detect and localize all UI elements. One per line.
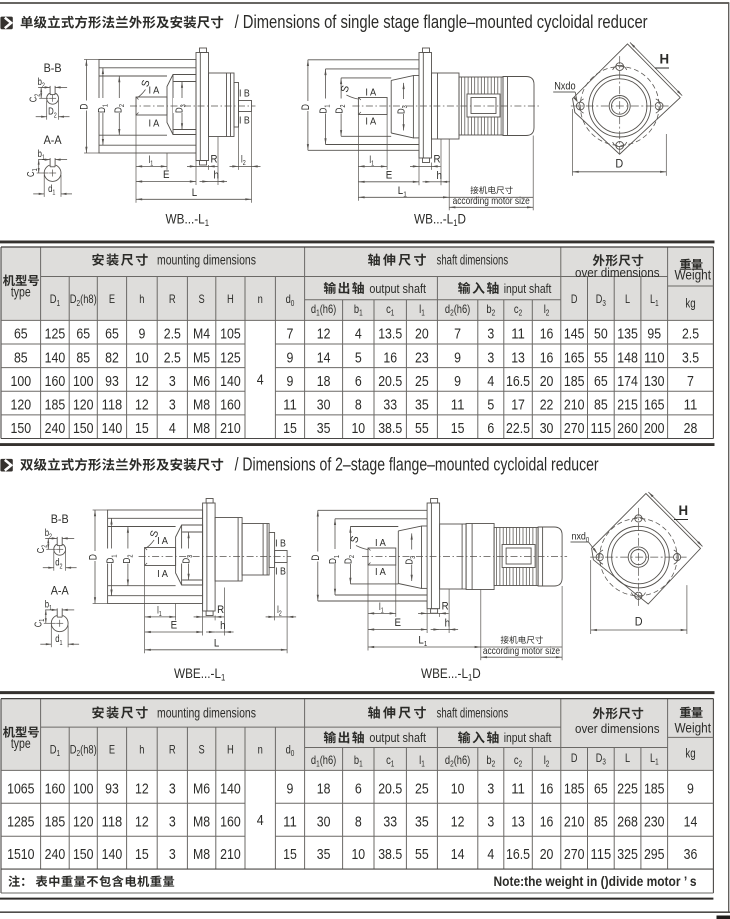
svg-text:I B: I B	[275, 539, 286, 550]
svg-text:85: 85	[76, 350, 90, 366]
svg-text:200: 200	[644, 421, 665, 437]
svg-text:/ Dimensions of 2–stage flange: / Dimensions of 2–stage flange–mounted c…	[235, 455, 599, 475]
svg-text:20.5: 20.5	[378, 374, 402, 390]
svg-text:L: L	[625, 751, 630, 765]
svg-text:I A: I A	[157, 536, 168, 547]
svg-text:output shaft: output shaft	[369, 281, 426, 296]
svg-text:D: D	[615, 156, 623, 170]
svg-text:100: 100	[73, 781, 94, 797]
svg-text:D: D	[300, 104, 312, 110]
svg-text:E: E	[386, 169, 393, 181]
svg-text:16: 16	[383, 350, 397, 366]
svg-text:2.5: 2.5	[164, 350, 181, 366]
svg-text:2: 2	[492, 309, 496, 318]
svg-text:100: 100	[73, 374, 94, 390]
svg-text:4: 4	[487, 847, 494, 863]
svg-text:mounting dimensions: mounting dimensions	[157, 705, 256, 720]
svg-text:9: 9	[287, 350, 294, 366]
svg-text:R: R	[169, 292, 176, 306]
svg-text:0: 0	[291, 299, 295, 308]
svg-text:12: 12	[135, 374, 149, 390]
svg-text:2: 2	[279, 611, 282, 618]
svg-text:12: 12	[317, 327, 331, 343]
svg-text:7: 7	[454, 327, 461, 343]
svg-text:2: 2	[117, 104, 126, 107]
svg-text:65: 65	[14, 327, 28, 343]
svg-text:1: 1	[101, 104, 110, 107]
svg-text:h: h	[139, 743, 144, 757]
svg-text:260: 260	[617, 421, 638, 437]
svg-text:1: 1	[57, 749, 61, 758]
svg-text:3: 3	[169, 814, 176, 830]
svg-text:D: D	[571, 292, 578, 306]
svg-text:33: 33	[383, 814, 397, 830]
svg-text:35: 35	[317, 421, 331, 437]
svg-text:7: 7	[687, 374, 694, 390]
svg-text:1: 1	[391, 759, 395, 768]
svg-text:2: 2	[243, 160, 246, 167]
svg-text:D: D	[571, 751, 578, 765]
svg-text:D: D	[458, 211, 467, 227]
svg-text:17: 17	[511, 398, 525, 414]
svg-text:15: 15	[283, 421, 297, 437]
svg-text:1: 1	[391, 309, 395, 318]
svg-text:230: 230	[644, 814, 665, 830]
svg-text:(h6): (h6)	[454, 302, 471, 316]
svg-text:1: 1	[332, 555, 341, 558]
svg-text:210: 210	[564, 814, 585, 830]
svg-text:8: 8	[355, 814, 362, 830]
svg-text:16.5: 16.5	[506, 374, 530, 390]
svg-text:15: 15	[135, 847, 149, 863]
svg-text:E: E	[171, 620, 178, 632]
svg-text:1: 1	[60, 640, 63, 647]
svg-text:85: 85	[14, 350, 28, 366]
svg-text:1: 1	[57, 299, 61, 308]
svg-text:2: 2	[42, 83, 45, 90]
svg-text:118: 118	[102, 398, 123, 414]
svg-text:115: 115	[591, 847, 612, 863]
svg-text:3.5: 3.5	[682, 350, 699, 366]
svg-text:55: 55	[594, 350, 608, 366]
svg-text:1510: 1510	[7, 847, 34, 863]
svg-text:1285: 1285	[7, 814, 34, 830]
svg-text:n: n	[258, 292, 263, 306]
svg-text:2: 2	[126, 555, 135, 558]
svg-text:WBE...-L: WBE...-L	[174, 665, 221, 681]
svg-text:12: 12	[135, 398, 149, 414]
svg-text:85: 85	[594, 814, 608, 830]
svg-text:2: 2	[546, 759, 550, 768]
svg-text:n: n	[258, 743, 263, 757]
svg-text:65: 65	[105, 327, 119, 343]
svg-text:9: 9	[454, 350, 461, 366]
svg-text:H: H	[660, 51, 670, 67]
svg-text:14: 14	[451, 847, 465, 863]
svg-text:1: 1	[424, 639, 428, 648]
svg-text:38.5: 38.5	[378, 421, 402, 437]
svg-text:1065: 1065	[7, 781, 34, 797]
svg-text:0: 0	[586, 537, 589, 544]
svg-text:(h6): (h6)	[320, 753, 337, 767]
svg-text:160: 160	[220, 814, 241, 830]
svg-text:1: 1	[150, 161, 153, 168]
svg-text:according motor size: according motor size	[453, 196, 530, 207]
svg-text:10: 10	[351, 847, 365, 863]
svg-text:185: 185	[564, 374, 585, 390]
svg-text:16: 16	[540, 781, 554, 797]
svg-text:I A: I A	[375, 567, 386, 578]
svg-text:240: 240	[45, 421, 66, 437]
svg-text:14: 14	[317, 350, 331, 366]
svg-text:kg: kg	[685, 297, 695, 311]
svg-text:h: h	[445, 618, 450, 630]
svg-text:145: 145	[564, 327, 585, 343]
svg-text:L: L	[214, 637, 219, 649]
svg-text:215: 215	[617, 398, 638, 414]
svg-text:M6: M6	[193, 374, 210, 390]
svg-text:16: 16	[540, 327, 554, 343]
svg-text:2: 2	[41, 545, 48, 548]
svg-text:1: 1	[421, 759, 425, 768]
svg-text:h: h	[139, 292, 144, 306]
svg-text:9: 9	[454, 374, 461, 390]
svg-text:38.5: 38.5	[378, 847, 402, 863]
svg-text:30: 30	[540, 421, 554, 437]
svg-text:150: 150	[73, 421, 94, 437]
svg-text:3: 3	[487, 327, 494, 343]
svg-text:R: R	[434, 153, 441, 165]
svg-text:A-A: A-A	[51, 583, 70, 597]
svg-text:270: 270	[564, 847, 585, 863]
svg-text:1: 1	[322, 105, 331, 108]
svg-text:2: 2	[519, 759, 523, 768]
svg-text:35: 35	[415, 814, 429, 830]
svg-text:135: 135	[617, 327, 638, 343]
svg-text:M4: M4	[193, 327, 210, 343]
svg-text:55: 55	[415, 847, 429, 863]
svg-text:H: H	[227, 292, 234, 306]
svg-text:20: 20	[415, 327, 429, 343]
svg-text:mounting dimensions: mounting dimensions	[157, 253, 256, 268]
svg-text:I B: I B	[239, 116, 250, 127]
svg-text:I A: I A	[149, 86, 160, 97]
svg-text:over dimensions: over dimensions	[575, 265, 660, 280]
svg-text:125: 125	[45, 327, 66, 343]
svg-text:5: 5	[487, 398, 494, 414]
svg-text:55: 55	[415, 421, 429, 437]
svg-text:2.5: 2.5	[682, 327, 699, 343]
svg-text:1: 1	[221, 673, 225, 683]
svg-text:65: 65	[594, 374, 608, 390]
svg-text:11: 11	[451, 398, 465, 414]
svg-text:E: E	[109, 292, 115, 306]
svg-text:according motor size: according motor size	[483, 646, 560, 657]
svg-text:20: 20	[540, 374, 554, 390]
svg-text:R: R	[217, 604, 224, 616]
svg-text:11: 11	[283, 814, 297, 830]
svg-text:22.5: 22.5	[506, 421, 530, 437]
svg-text:25: 25	[415, 374, 429, 390]
svg-text:output shaft: output shaft	[369, 730, 426, 745]
svg-text:16: 16	[540, 814, 554, 830]
svg-text:I B: I B	[239, 89, 250, 100]
svg-text:I A: I A	[365, 117, 376, 128]
svg-text:210: 210	[564, 398, 585, 414]
svg-text:2: 2	[519, 309, 523, 318]
svg-text:25: 25	[415, 781, 429, 797]
svg-text:B-B: B-B	[51, 512, 69, 526]
svg-text:Weight: Weight	[675, 721, 712, 736]
svg-text:120: 120	[73, 814, 94, 830]
svg-text:h: h	[214, 170, 219, 182]
svg-text:23: 23	[415, 350, 429, 366]
svg-text:1: 1	[109, 555, 118, 558]
svg-text:10: 10	[351, 421, 365, 437]
svg-text:6: 6	[355, 374, 362, 390]
svg-text:6: 6	[355, 781, 362, 797]
svg-text:160: 160	[45, 374, 66, 390]
svg-text:174: 174	[617, 374, 638, 390]
svg-text:140: 140	[220, 374, 241, 390]
svg-text:325: 325	[617, 847, 638, 863]
svg-text:h: h	[220, 620, 225, 632]
svg-text:S: S	[199, 292, 205, 306]
svg-text:Nxdo: Nxdo	[554, 81, 575, 93]
svg-text:M8: M8	[193, 421, 210, 437]
svg-text:9: 9	[287, 781, 294, 797]
svg-text:150: 150	[10, 421, 31, 437]
svg-text:85: 85	[594, 398, 608, 414]
svg-text:11: 11	[283, 398, 297, 414]
svg-text:11: 11	[511, 327, 525, 343]
svg-text:14: 14	[684, 814, 698, 830]
svg-text:185: 185	[564, 781, 585, 797]
svg-text:165: 165	[644, 398, 665, 414]
svg-text:3: 3	[487, 814, 494, 830]
svg-text:Weight: Weight	[675, 268, 712, 283]
svg-text:1: 1	[39, 619, 46, 622]
svg-text:30: 30	[317, 398, 331, 414]
svg-text:S: S	[199, 743, 205, 757]
svg-text:118: 118	[102, 814, 123, 830]
svg-text:R: R	[211, 153, 218, 165]
svg-text:140: 140	[102, 421, 123, 437]
svg-text:20: 20	[540, 847, 554, 863]
svg-text:11: 11	[511, 781, 525, 797]
svg-text:18: 18	[317, 781, 331, 797]
svg-text:65: 65	[76, 327, 90, 343]
svg-text:120: 120	[10, 398, 31, 414]
svg-text:185: 185	[644, 781, 665, 797]
svg-text:2: 2	[49, 534, 52, 541]
svg-text:E: E	[109, 743, 115, 757]
svg-text:1: 1	[403, 189, 407, 198]
svg-text:185: 185	[45, 814, 66, 830]
svg-text:10: 10	[451, 781, 465, 797]
svg-text:13: 13	[511, 350, 525, 366]
svg-text:3: 3	[602, 758, 606, 767]
svg-text:13.5: 13.5	[378, 327, 402, 343]
svg-text:120: 120	[73, 398, 94, 414]
svg-text:1: 1	[49, 605, 52, 612]
svg-text:I A: I A	[375, 538, 386, 549]
svg-text:M5: M5	[193, 350, 210, 366]
svg-text:240: 240	[45, 847, 66, 863]
svg-text:M8: M8	[193, 814, 210, 830]
svg-text:M8: M8	[193, 398, 210, 414]
svg-text:9: 9	[687, 781, 694, 797]
svg-text:5: 5	[355, 350, 362, 366]
svg-text:50: 50	[594, 327, 608, 343]
svg-text:2.5: 2.5	[164, 327, 181, 343]
svg-text:1: 1	[655, 299, 659, 308]
svg-text:H: H	[227, 743, 234, 757]
svg-text:input shaft: input shaft	[504, 281, 552, 296]
svg-text:2: 2	[546, 309, 550, 318]
svg-text:35: 35	[415, 398, 429, 414]
svg-text:165: 165	[564, 350, 585, 366]
svg-text:(h8): (h8)	[80, 743, 97, 757]
svg-text:18: 18	[317, 374, 331, 390]
svg-text:22: 22	[540, 398, 554, 414]
svg-text:WBE...-L: WBE...-L	[421, 665, 468, 681]
svg-text:3: 3	[169, 847, 176, 863]
svg-text:nxd: nxd	[572, 531, 587, 543]
svg-text:15: 15	[451, 421, 465, 437]
svg-text:10: 10	[135, 350, 149, 366]
svg-text:3: 3	[602, 299, 606, 308]
svg-text:105: 105	[220, 327, 241, 343]
svg-text:148: 148	[617, 350, 638, 366]
svg-text:93: 93	[105, 374, 119, 390]
svg-text:160: 160	[45, 781, 66, 797]
svg-text:R: R	[442, 600, 449, 612]
svg-text:11: 11	[684, 398, 698, 414]
svg-text:30: 30	[317, 814, 331, 830]
svg-text:E: E	[163, 169, 170, 181]
svg-text:140: 140	[220, 781, 241, 797]
svg-text:input shaft: input shaft	[504, 730, 552, 745]
svg-text:(h6): (h6)	[320, 302, 337, 316]
svg-text:H: H	[679, 502, 689, 518]
svg-text:110: 110	[644, 350, 665, 366]
svg-text:L: L	[192, 187, 197, 199]
svg-text:4: 4	[257, 813, 264, 829]
svg-text:140: 140	[45, 350, 66, 366]
svg-text:35: 35	[317, 847, 331, 863]
svg-text:6: 6	[487, 421, 494, 437]
svg-text:12: 12	[135, 781, 149, 797]
svg-text:I A: I A	[365, 88, 376, 99]
svg-text:8: 8	[355, 398, 362, 414]
svg-text:12: 12	[451, 814, 465, 830]
svg-text:2: 2	[492, 759, 496, 768]
svg-text:150: 150	[73, 847, 94, 863]
svg-text:82: 82	[105, 350, 119, 366]
svg-text:A-A: A-A	[44, 133, 63, 147]
svg-text:I A: I A	[157, 569, 168, 580]
svg-text:1: 1	[159, 611, 162, 618]
svg-text:M6: M6	[193, 781, 210, 797]
svg-text:225: 225	[617, 781, 638, 797]
svg-text:I B: I B	[275, 567, 286, 578]
svg-text:130: 130	[644, 374, 665, 390]
svg-text:1: 1	[655, 758, 659, 767]
svg-text:140: 140	[102, 847, 123, 863]
svg-text:15: 15	[283, 847, 297, 863]
svg-text:L: L	[625, 292, 630, 306]
svg-text:2: 2	[54, 112, 57, 119]
svg-text:2: 2	[34, 94, 41, 97]
svg-text:over dimensions: over dimensions	[575, 721, 660, 736]
svg-text:12: 12	[135, 814, 149, 830]
svg-text:D: D	[472, 665, 481, 681]
svg-text:WB...-L: WB...-L	[166, 211, 205, 227]
svg-text:4: 4	[355, 327, 362, 343]
svg-text:2: 2	[60, 563, 63, 570]
svg-text:1: 1	[359, 309, 363, 318]
svg-text:1: 1	[421, 309, 425, 318]
svg-text:16: 16	[540, 350, 554, 366]
svg-text:210: 210	[220, 421, 241, 437]
svg-text:1: 1	[359, 759, 363, 768]
svg-text:3: 3	[169, 781, 176, 797]
svg-text:D: D	[79, 103, 91, 109]
svg-text:(h6): (h6)	[454, 753, 471, 767]
svg-text:125: 125	[220, 350, 241, 366]
svg-text:type: type	[11, 736, 31, 751]
svg-text:R: R	[169, 743, 176, 757]
svg-text:9: 9	[287, 374, 294, 390]
svg-text:0: 0	[291, 749, 295, 758]
svg-text:185: 185	[45, 398, 66, 414]
svg-text:210: 210	[220, 847, 241, 863]
svg-text:9: 9	[138, 327, 145, 343]
svg-text:D: D	[310, 554, 322, 560]
svg-text:type: type	[11, 285, 31, 300]
svg-text:93: 93	[105, 781, 119, 797]
svg-text:100: 100	[10, 374, 31, 390]
svg-text:kg: kg	[685, 747, 695, 761]
svg-text:1: 1	[381, 608, 384, 615]
svg-text:3: 3	[487, 350, 494, 366]
svg-text:3: 3	[169, 398, 176, 414]
svg-text:160: 160	[220, 398, 241, 414]
svg-text:4: 4	[257, 372, 264, 388]
svg-text:1: 1	[371, 161, 374, 168]
svg-text:33: 33	[383, 398, 397, 414]
svg-text:shaft dimensions: shaft dimensions	[437, 253, 509, 268]
svg-text:I A: I A	[149, 119, 160, 130]
svg-text:13: 13	[511, 814, 525, 830]
svg-text:shaft dimensions: shaft dimensions	[437, 705, 509, 720]
svg-text:2: 2	[347, 555, 356, 558]
svg-text:295: 295	[644, 847, 665, 863]
svg-text:36: 36	[684, 847, 698, 863]
svg-text:4: 4	[487, 374, 494, 390]
svg-text:1: 1	[205, 218, 209, 228]
svg-text:28: 28	[684, 421, 698, 437]
svg-text:1: 1	[32, 168, 39, 171]
svg-text:B-B: B-B	[44, 61, 62, 75]
svg-text:270: 270	[564, 421, 585, 437]
svg-text:16.5: 16.5	[506, 847, 530, 863]
svg-text:1: 1	[52, 190, 55, 197]
svg-text:D: D	[87, 554, 99, 560]
svg-text:20.5: 20.5	[378, 781, 402, 797]
svg-text:2: 2	[338, 104, 347, 107]
